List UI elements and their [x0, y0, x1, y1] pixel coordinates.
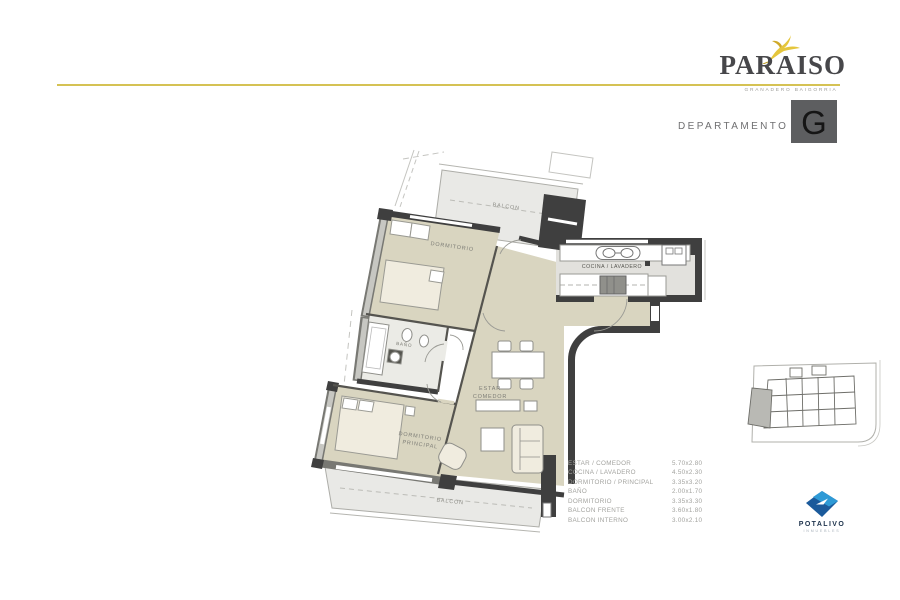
- legend-row: BALCON FRENTE 3.60x1.80: [568, 508, 718, 514]
- gold-divider-line: [57, 84, 840, 86]
- department-label: DEPARTAMENTO: [678, 121, 788, 132]
- room-label-estar-1: ESTAR: [479, 386, 501, 392]
- legend-size: 4.50x2.30: [672, 470, 702, 476]
- legend-size: 3.00x2.10: [672, 518, 702, 524]
- legend-label: DORMITORIO / PRINCIPAL: [568, 480, 672, 486]
- entry-hall-floor: [556, 300, 656, 326]
- developer-name: POTALIVO: [784, 521, 860, 528]
- legend-row: BAÑO 2.00x1.70: [568, 489, 718, 495]
- legend-size: 2.00x1.70: [672, 489, 702, 495]
- brochure-page: PARAISO GRANADERO BAIGORRIA DEPARTAMENTO…: [0, 0, 900, 600]
- legend-label: DORMITORIO: [568, 499, 672, 505]
- legend-row: ESTAR / COMEDOR 5.70x2.80: [568, 461, 718, 467]
- developer-logo-icon: [804, 489, 840, 519]
- legend-label: BALCON FRENTE: [568, 508, 672, 514]
- legend-label: BAÑO: [568, 489, 672, 495]
- legend-row: DORMITORIO / PRINCIPAL 3.35x3.20: [568, 480, 718, 486]
- legend-size: 5.70x2.80: [672, 461, 702, 467]
- legend-size: 3.35x3.20: [672, 480, 702, 486]
- legend-row: COCINA / LAVADERO 4.50x2.30: [568, 470, 718, 476]
- room-size-legend: ESTAR / COMEDOR 5.70x2.80 COCINA / LAVAD…: [568, 461, 718, 527]
- legend-row: DORMITORIO 3.35x3.30: [568, 499, 718, 505]
- legend-label: BALCON INTERNO: [568, 518, 672, 524]
- developer-logo: POTALIVO INMUEBLES: [784, 489, 860, 533]
- keyplan-highlighted-unit: [748, 388, 772, 428]
- legend-size: 3.35x3.30: [672, 499, 702, 505]
- legend-row: BALCON INTERNO 3.00x2.10: [568, 518, 718, 524]
- legend-size: 3.60x1.80: [672, 508, 702, 514]
- brand-title: PARAISO: [714, 50, 846, 81]
- room-label-estar-2: COMEDOR: [473, 394, 507, 400]
- brand-subtitle: GRANADERO BAIGORRIA: [738, 88, 844, 93]
- room-label-cocina: COCINA / LAVADERO: [582, 264, 642, 270]
- legend-label: ESTAR / COMEDOR: [568, 461, 672, 467]
- keyplan-minimap: [738, 352, 888, 467]
- developer-subtitle: INMUEBLES: [784, 529, 860, 533]
- balcony-planter: [543, 503, 551, 517]
- unit-letter-badge: G: [791, 100, 837, 143]
- legend-label: COCINA / LAVADERO: [568, 470, 672, 476]
